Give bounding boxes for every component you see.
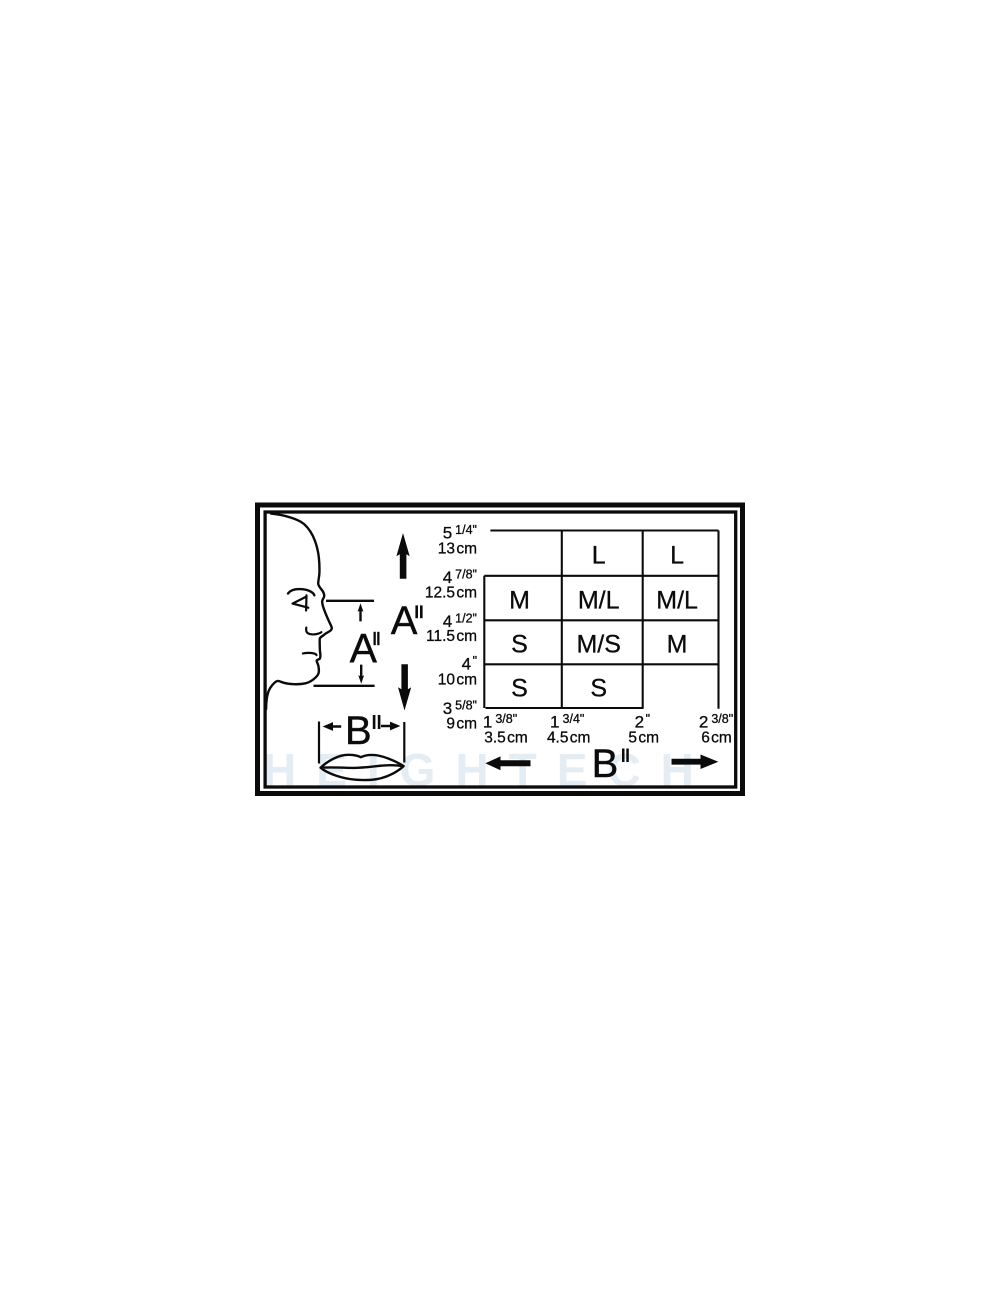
svg-text:6 cm: 6 cm xyxy=(701,730,732,747)
svg-text:10 cm: 10 cm xyxy=(438,671,477,688)
svg-text:M/L: M/L xyxy=(578,586,620,614)
svg-text:S: S xyxy=(511,631,528,659)
svg-text:L: L xyxy=(670,542,684,570)
svg-text:11.5 cm: 11.5 cm xyxy=(426,628,477,645)
svg-text:M: M xyxy=(667,631,688,659)
svg-text:5 cm: 5 cm xyxy=(628,730,659,747)
svg-text:12.5 cm: 12.5 cm xyxy=(425,585,477,602)
svg-text:B: B xyxy=(592,742,619,786)
svg-text:M: M xyxy=(509,586,530,614)
svg-text:B: B xyxy=(345,709,372,753)
svg-text:S: S xyxy=(511,674,528,702)
svg-text:9 cm: 9 cm xyxy=(446,716,477,733)
svg-text:L: L xyxy=(592,542,606,570)
svg-text:M/S: M/S xyxy=(576,631,620,659)
svg-text:13 cm: 13 cm xyxy=(438,541,477,558)
svg-text:M/L: M/L xyxy=(656,586,698,614)
svg-text:A: A xyxy=(391,599,418,643)
svg-text:3.5 cm: 3.5 cm xyxy=(484,730,528,747)
svg-text:A: A xyxy=(350,625,378,671)
svg-text:S: S xyxy=(590,674,607,702)
svg-text:4.5 cm: 4.5 cm xyxy=(547,730,591,747)
